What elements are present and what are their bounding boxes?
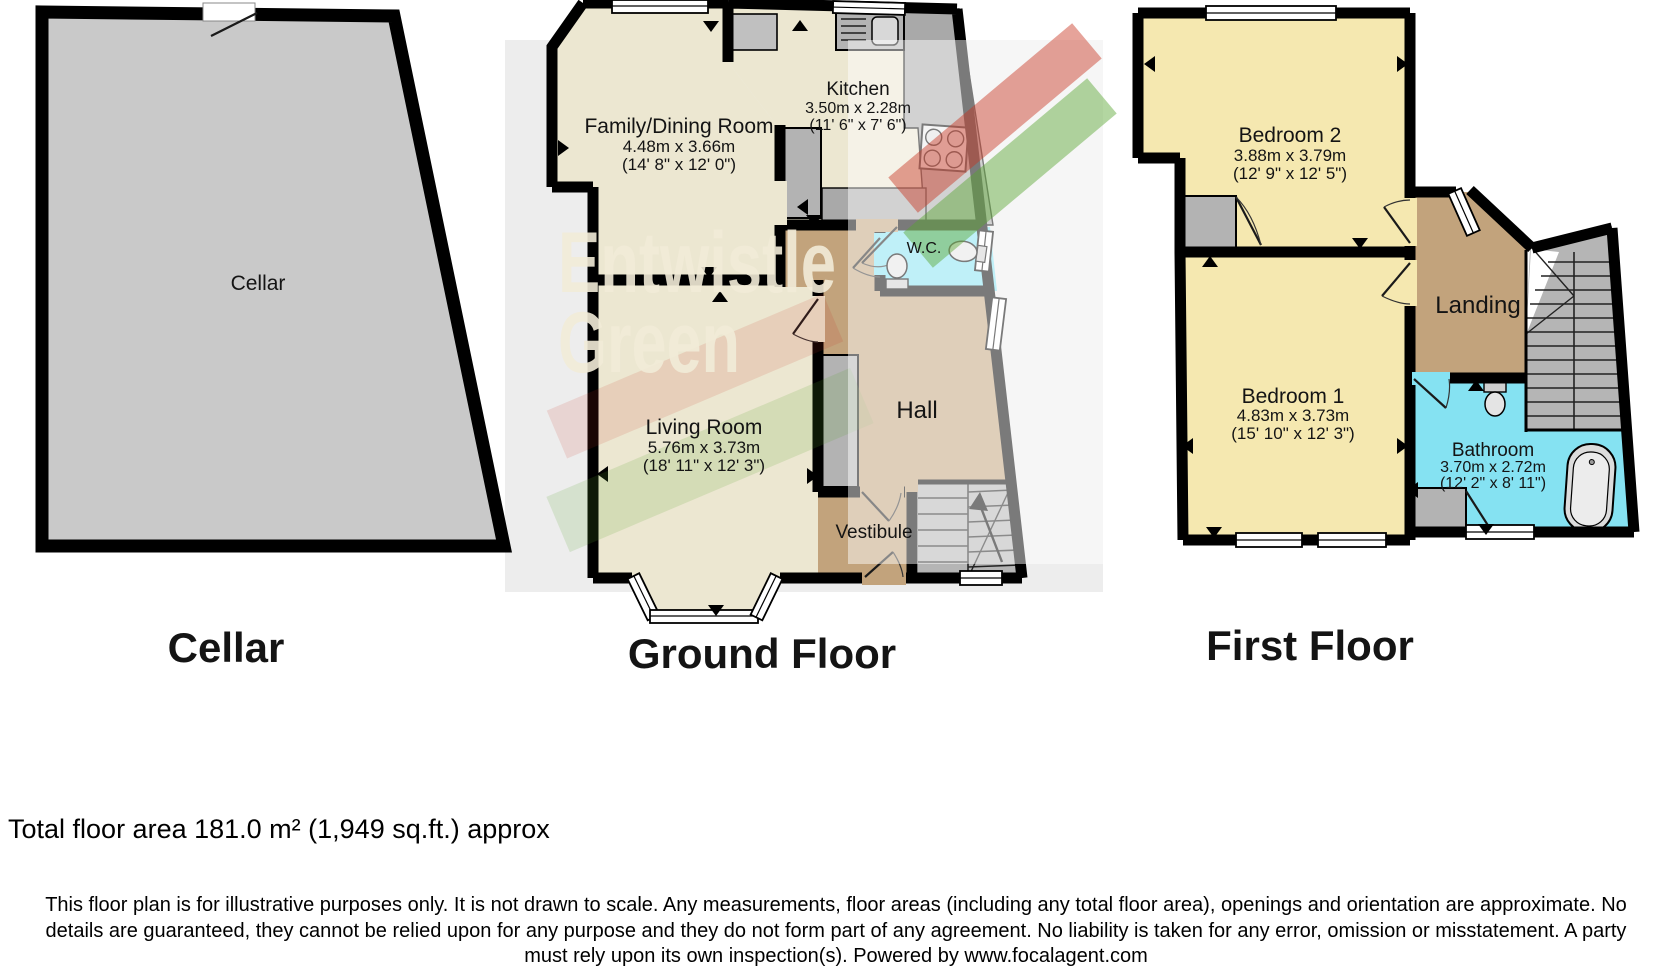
living-room-metric: 5.76m x 3.73m (648, 438, 760, 457)
family-window (612, 0, 708, 13)
bedroom1-window-left (1236, 533, 1302, 547)
disclaimer-line-1: This floor plan is for illustrative purp… (0, 893, 1672, 919)
bedroom1-metric: 4.83m x 3.73m (1237, 406, 1349, 425)
watermark-text-line2: Green (558, 295, 740, 391)
floor-titles: Cellar Ground Floor First Floor (168, 622, 1414, 677)
hall-label: Hall (896, 397, 937, 424)
cellar-room-label: Cellar (231, 272, 286, 295)
bedroom2-label: Bedroom 2 (1239, 124, 1342, 147)
bedroom1-imperial: (15' 10" x 12' 3") (1231, 424, 1354, 443)
cellar-title: Cellar (168, 624, 285, 671)
bedroom2-wardrobe (1184, 196, 1236, 250)
family-dining-imperial: (14' 8" x 12' 0") (622, 155, 736, 174)
stairs-window (960, 571, 1002, 585)
bathroom-toilet-icon (1485, 392, 1505, 416)
kitchen-label: Kitchen (826, 79, 889, 100)
kitchen-imperial: (11' 6" x 7' 6") (809, 117, 906, 134)
kitchen-cupboard (729, 14, 777, 50)
first-floor-title: First Floor (1206, 622, 1414, 669)
family-dining-label: Family/Dining Room (584, 115, 773, 138)
total-floor-area: Total floor area 181.0 m² (1,949 sq.ft.)… (8, 814, 550, 845)
bedroom1-window-right (1318, 533, 1386, 547)
disclaimer-line-2: details are guaranteed, they cannot be r… (0, 919, 1672, 945)
bedroom1-label: Bedroom 1 (1242, 385, 1345, 408)
bathtub-icon (1563, 442, 1617, 533)
vestibule-label: Vestibule (835, 522, 912, 543)
bathroom-closet (1410, 488, 1466, 532)
kitchen-metric: 3.50m x 2.28m (805, 100, 911, 117)
bathroom-window (1466, 525, 1534, 539)
wc-label: W.C. (907, 240, 942, 257)
family-dining-metric: 4.48m x 3.66m (623, 137, 735, 156)
bedroom2-window (1206, 6, 1336, 20)
bedroom2-imperial: (12' 9" x 12' 5") (1233, 164, 1347, 183)
floorplan-canvas: Entwistle Green Cellar Family/Dining Roo… (0, 0, 1672, 790)
disclaimer-line-3: must rely upon its own inspection(s). Po… (0, 944, 1672, 970)
bathroom-label: Bathroom (1452, 440, 1534, 461)
bedroom2-metric: 3.88m x 3.79m (1234, 146, 1346, 165)
floorplan-page: Entwistle Green Cellar Family/Dining Roo… (0, 0, 1672, 977)
disclaimer: This floor plan is for illustrative purp… (0, 893, 1672, 970)
living-room-label: Living Room (646, 416, 763, 439)
living-room-imperial: (18' 11" x 12' 3") (643, 456, 765, 475)
kitchen-window (833, 1, 905, 15)
bay-window-center (650, 610, 758, 623)
bathroom-imperial: (12' 2" x 8' 11") (1440, 475, 1546, 492)
first-floor-plan (1138, 6, 1634, 547)
ground-floor-title: Ground Floor (628, 630, 896, 677)
landing-label: Landing (1435, 292, 1520, 319)
bathroom-metric: 3.70m x 2.72m (1440, 459, 1546, 476)
